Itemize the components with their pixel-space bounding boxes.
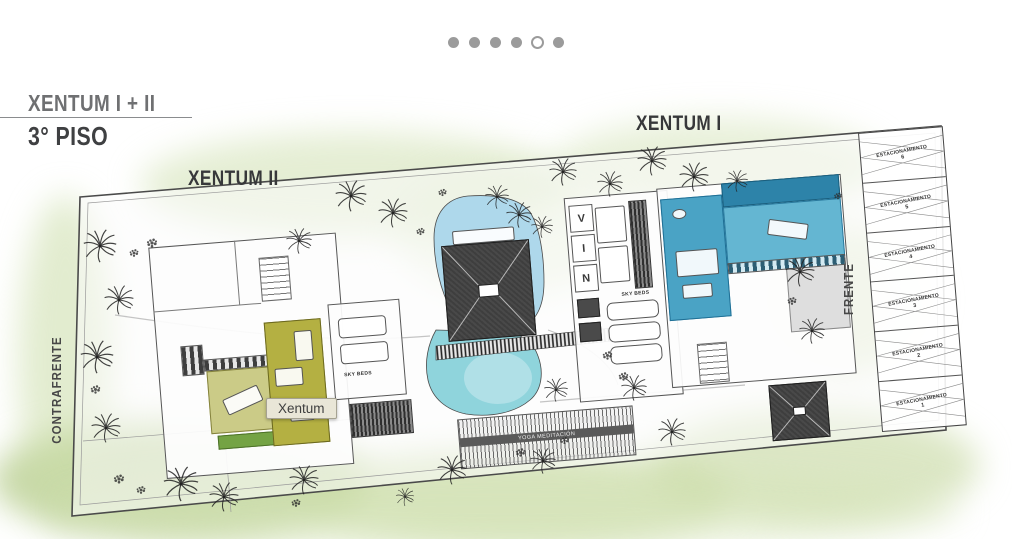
carousel-dot[interactable]	[531, 36, 544, 49]
unit-main-room	[660, 195, 732, 322]
label-xentum-ii: XENTUM II	[188, 167, 299, 191]
vin-room: V	[568, 204, 594, 233]
parking-stall: ESTACIONAMIENTO3	[871, 276, 958, 332]
sky-bed-room-left: SKY BEDS	[327, 299, 406, 400]
bed-icon	[675, 248, 719, 277]
lounge-chair-icon	[222, 384, 264, 415]
unit-main-room	[264, 318, 331, 446]
label-frente: FRENTE	[841, 247, 857, 331]
yoga-deck-band: YOGA MEDITACIÓN	[460, 424, 634, 447]
carousel-dot[interactable]	[448, 37, 459, 48]
carousel-dot[interactable]	[511, 37, 522, 48]
title-underline	[0, 117, 192, 118]
page-title: XENTUM I + II	[28, 90, 183, 117]
vin-room: I	[571, 234, 597, 263]
carousel	[448, 37, 564, 48]
palapa-roof	[441, 239, 536, 342]
parking-stall: ESTACIONAMIENTO4	[867, 227, 954, 283]
parking-stall: ESTACIONAMIENTO5	[863, 177, 950, 233]
bed-icon	[340, 341, 389, 365]
page: SKY BEDS V I N SKY BEDS	[0, 0, 1012, 539]
planter-icon	[577, 298, 600, 319]
carousel-dot[interactable]	[490, 37, 501, 48]
parking-stall: ESTACIONAMIENTO2	[875, 326, 962, 382]
lounge-chair-icon	[767, 219, 809, 240]
yoga-deck-label: YOGA MEDITACIÓN	[518, 431, 576, 442]
stairs-icon	[697, 342, 730, 384]
dark-deck	[349, 399, 414, 438]
desk-icon	[293, 330, 313, 361]
sky-beds-label: SKY BEDS	[344, 370, 372, 378]
planter-icon	[579, 322, 602, 343]
palapa-roof-small	[768, 381, 830, 441]
buildings-layer: SKY BEDS V I N SKY BEDS	[80, 134, 894, 526]
yoga-deck: YOGA MEDITACIÓN	[457, 405, 636, 469]
bed-panel	[595, 205, 628, 243]
label-xentum-i: XENTUM I	[636, 112, 740, 136]
bed-panel	[598, 245, 631, 283]
vin-room: N	[573, 264, 599, 293]
carousel-dot[interactable]	[469, 37, 480, 48]
sofa-icon	[274, 367, 303, 387]
carousel-dot[interactable]	[553, 37, 564, 48]
floor-subtitle: 3° PISO	[28, 121, 126, 152]
sink-icon	[672, 208, 687, 219]
parking-stall: ESTACIONAMIENTO1	[879, 376, 966, 431]
unit-xentum-ii[interactable]	[198, 306, 334, 467]
unit-xentum-i[interactable]	[659, 166, 852, 322]
parking-stall: ESTACIONAMIENTO6	[859, 127, 946, 183]
bed-icon	[338, 315, 387, 339]
label-contrafrente: CONTRAFRENTE	[49, 333, 65, 447]
hover-tooltip: Xentum	[266, 398, 337, 419]
sofa-icon	[682, 283, 713, 299]
stairs-icon	[258, 255, 291, 301]
